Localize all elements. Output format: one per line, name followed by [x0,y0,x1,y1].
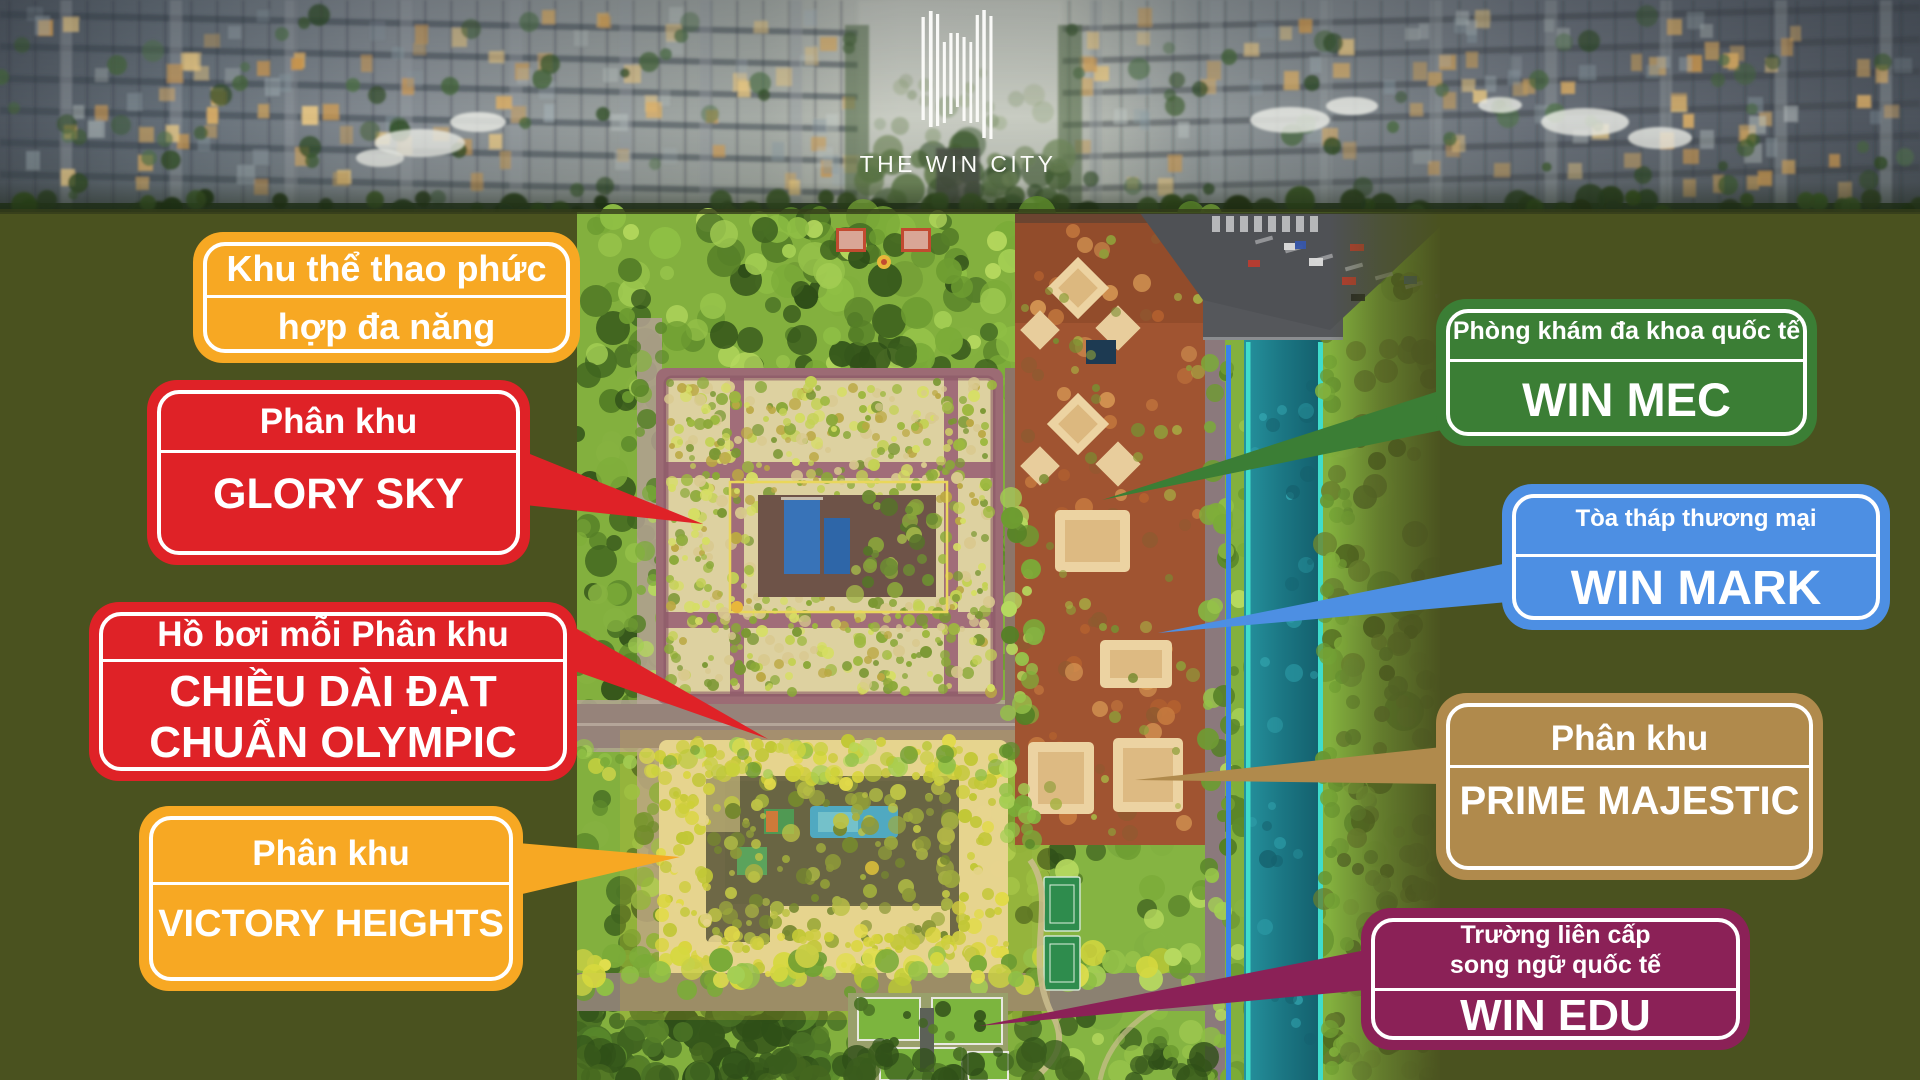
svg-text:THE WIN CITY: THE WIN CITY [860,151,1057,177]
